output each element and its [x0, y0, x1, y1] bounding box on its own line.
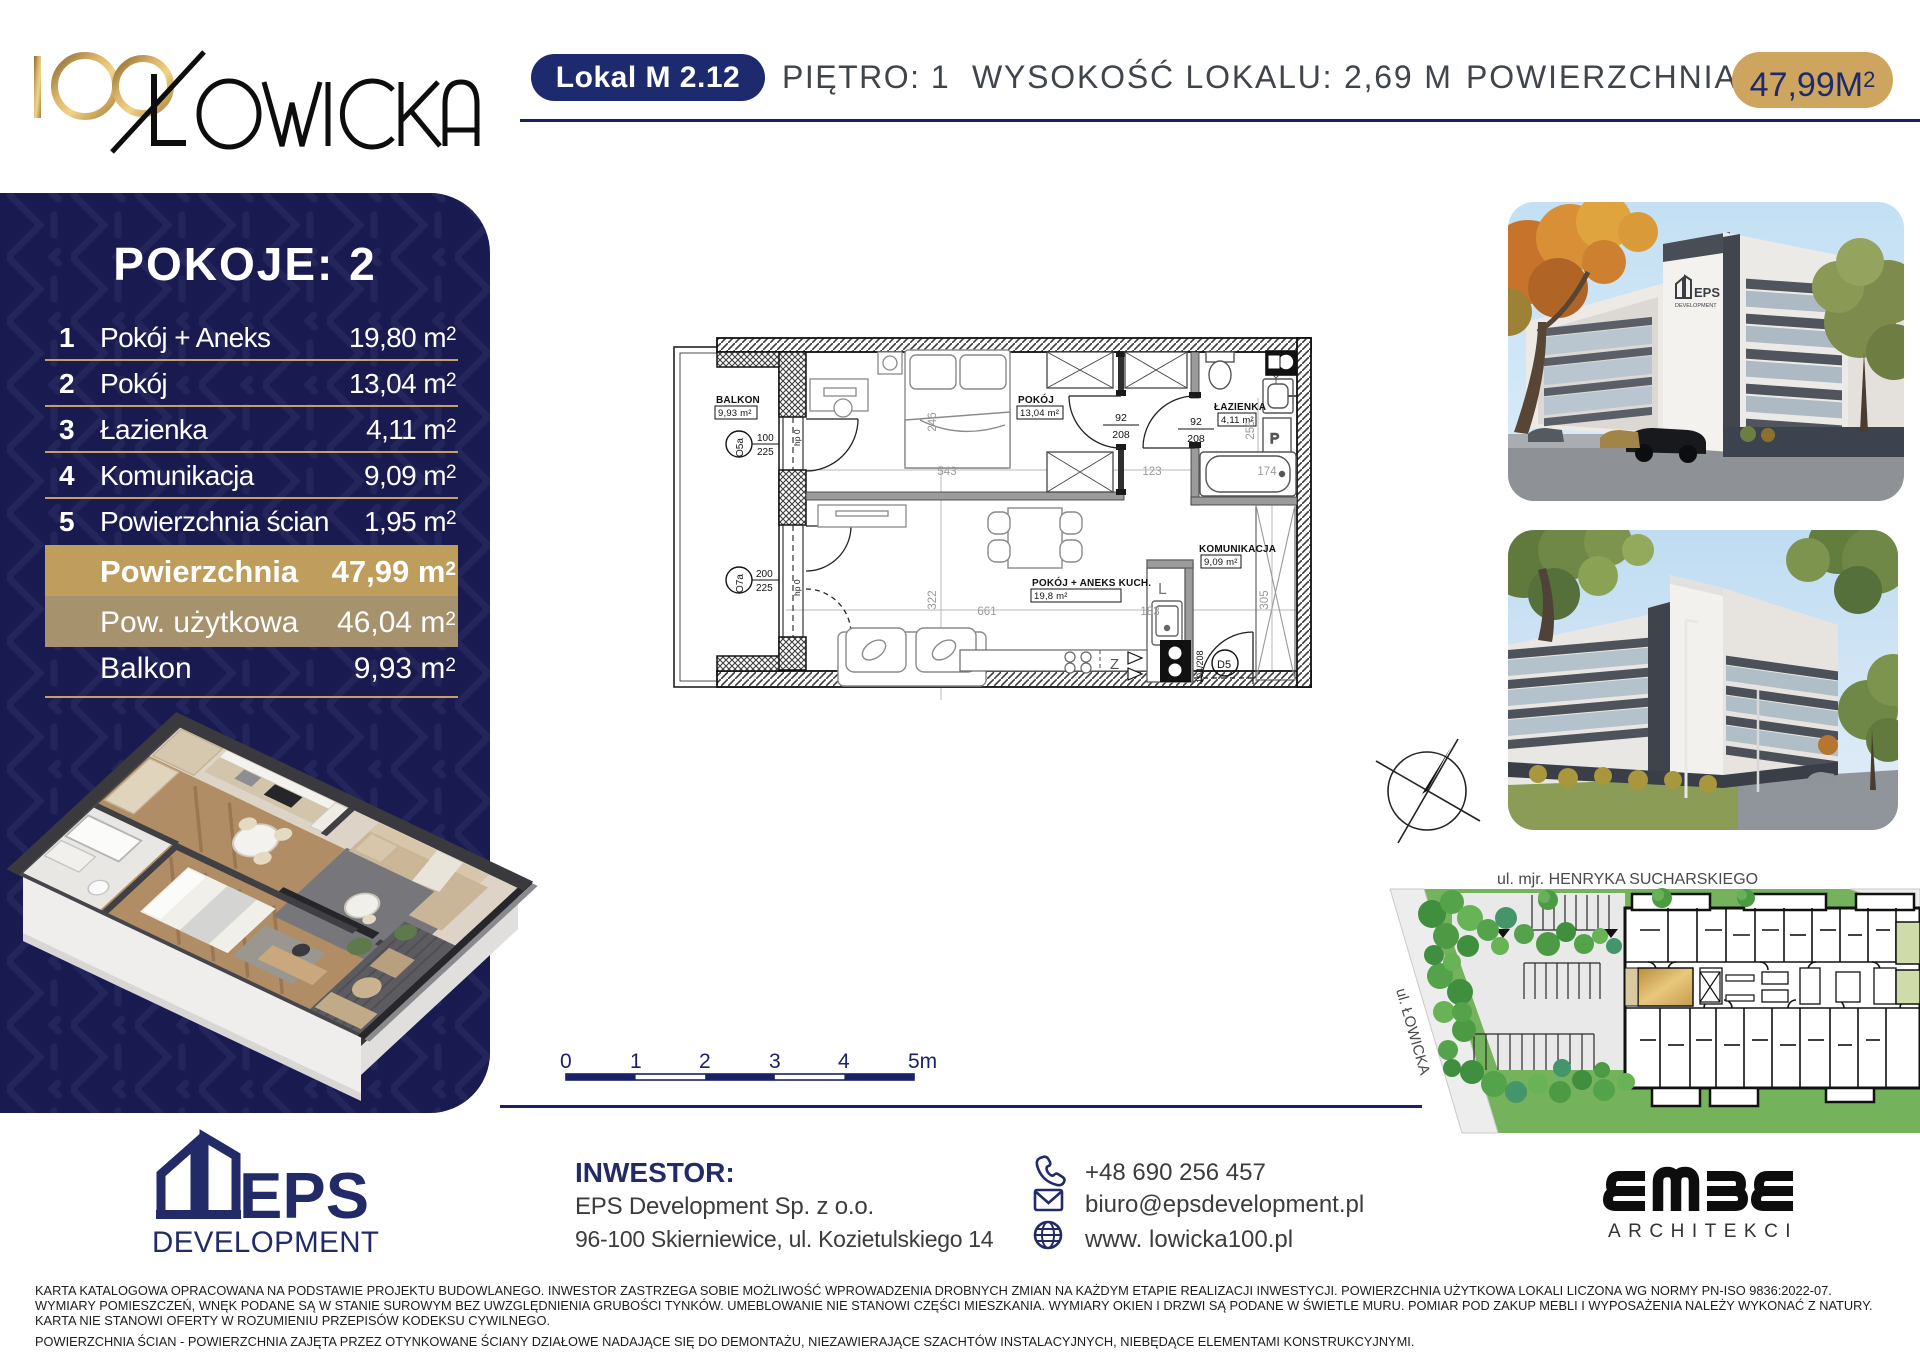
svg-text:104/208: 104/208 [1195, 650, 1205, 683]
svg-text:9,93 m²: 9,93 m² [718, 408, 752, 419]
svg-text:EPS: EPS [1694, 285, 1720, 300]
svg-text:174: 174 [1257, 466, 1277, 478]
svg-text:123: 123 [1142, 466, 1161, 478]
svg-text:225: 225 [757, 447, 774, 458]
svg-text:13,04 m²: 13,04 m² [1020, 408, 1059, 419]
svg-text:Z: Z [1110, 656, 1119, 673]
svg-text:100: 100 [757, 433, 774, 444]
svg-text:0: 0 [560, 1050, 572, 1073]
svg-text:ŁAZIENKA: ŁAZIENKA [1214, 402, 1266, 413]
svg-text:543: 543 [937, 466, 956, 478]
svg-text:O7a: O7a [735, 574, 746, 593]
svg-text:92: 92 [1190, 416, 1202, 428]
svg-text:1: 1 [630, 1050, 642, 1073]
svg-text:92: 92 [1115, 412, 1127, 424]
svg-text:hp 0: hp 0 [792, 579, 802, 596]
svg-text:5m: 5m [908, 1050, 937, 1073]
svg-text:P: P [1270, 430, 1279, 446]
svg-text:19,8 m²: 19,8 m² [1034, 591, 1068, 602]
svg-text:225: 225 [756, 583, 773, 594]
svg-text:4: 4 [838, 1050, 850, 1073]
svg-text:POKÓJ: POKÓJ [1018, 393, 1054, 406]
svg-text:L: L [1158, 581, 1167, 598]
svg-text:208: 208 [1112, 429, 1130, 441]
svg-text:246: 246 [927, 412, 939, 431]
svg-text:661: 661 [977, 606, 996, 618]
svg-text:KOMUNIKACJA: KOMUNIKACJA [1199, 544, 1276, 555]
svg-text:255: 255 [1245, 420, 1257, 439]
svg-text:EPS: EPS [239, 1159, 369, 1232]
svg-text:322: 322 [927, 590, 939, 609]
svg-text:O5a: O5a [735, 438, 746, 457]
svg-text:208: 208 [1187, 433, 1205, 445]
svg-text:200: 200 [756, 569, 773, 580]
svg-text:ul. mjr. HENRYKA SUCHARSKIEGO: ul. mjr. HENRYKA SUCHARSKIEGO [1497, 871, 1758, 888]
svg-text:ARCHITEKCI: ARCHITEKCI [1608, 1221, 1798, 1242]
svg-text:BALKON: BALKON [716, 395, 760, 406]
svg-text:D5: D5 [1217, 659, 1231, 671]
svg-text:183: 183 [1140, 606, 1159, 618]
svg-text:DEVELOPMENT: DEVELOPMENT [1675, 303, 1717, 309]
svg-text:hp 0: hp 0 [792, 429, 802, 446]
svg-text:2: 2 [699, 1050, 711, 1073]
svg-text:DEVELOPMENT: DEVELOPMENT [152, 1226, 379, 1259]
svg-text:305: 305 [1259, 590, 1271, 609]
svg-text:POKÓJ + ANEKS KUCH.: POKÓJ + ANEKS KUCH. [1032, 576, 1151, 589]
svg-text:9,09 m²: 9,09 m² [1204, 557, 1238, 568]
svg-text:3: 3 [769, 1050, 781, 1073]
